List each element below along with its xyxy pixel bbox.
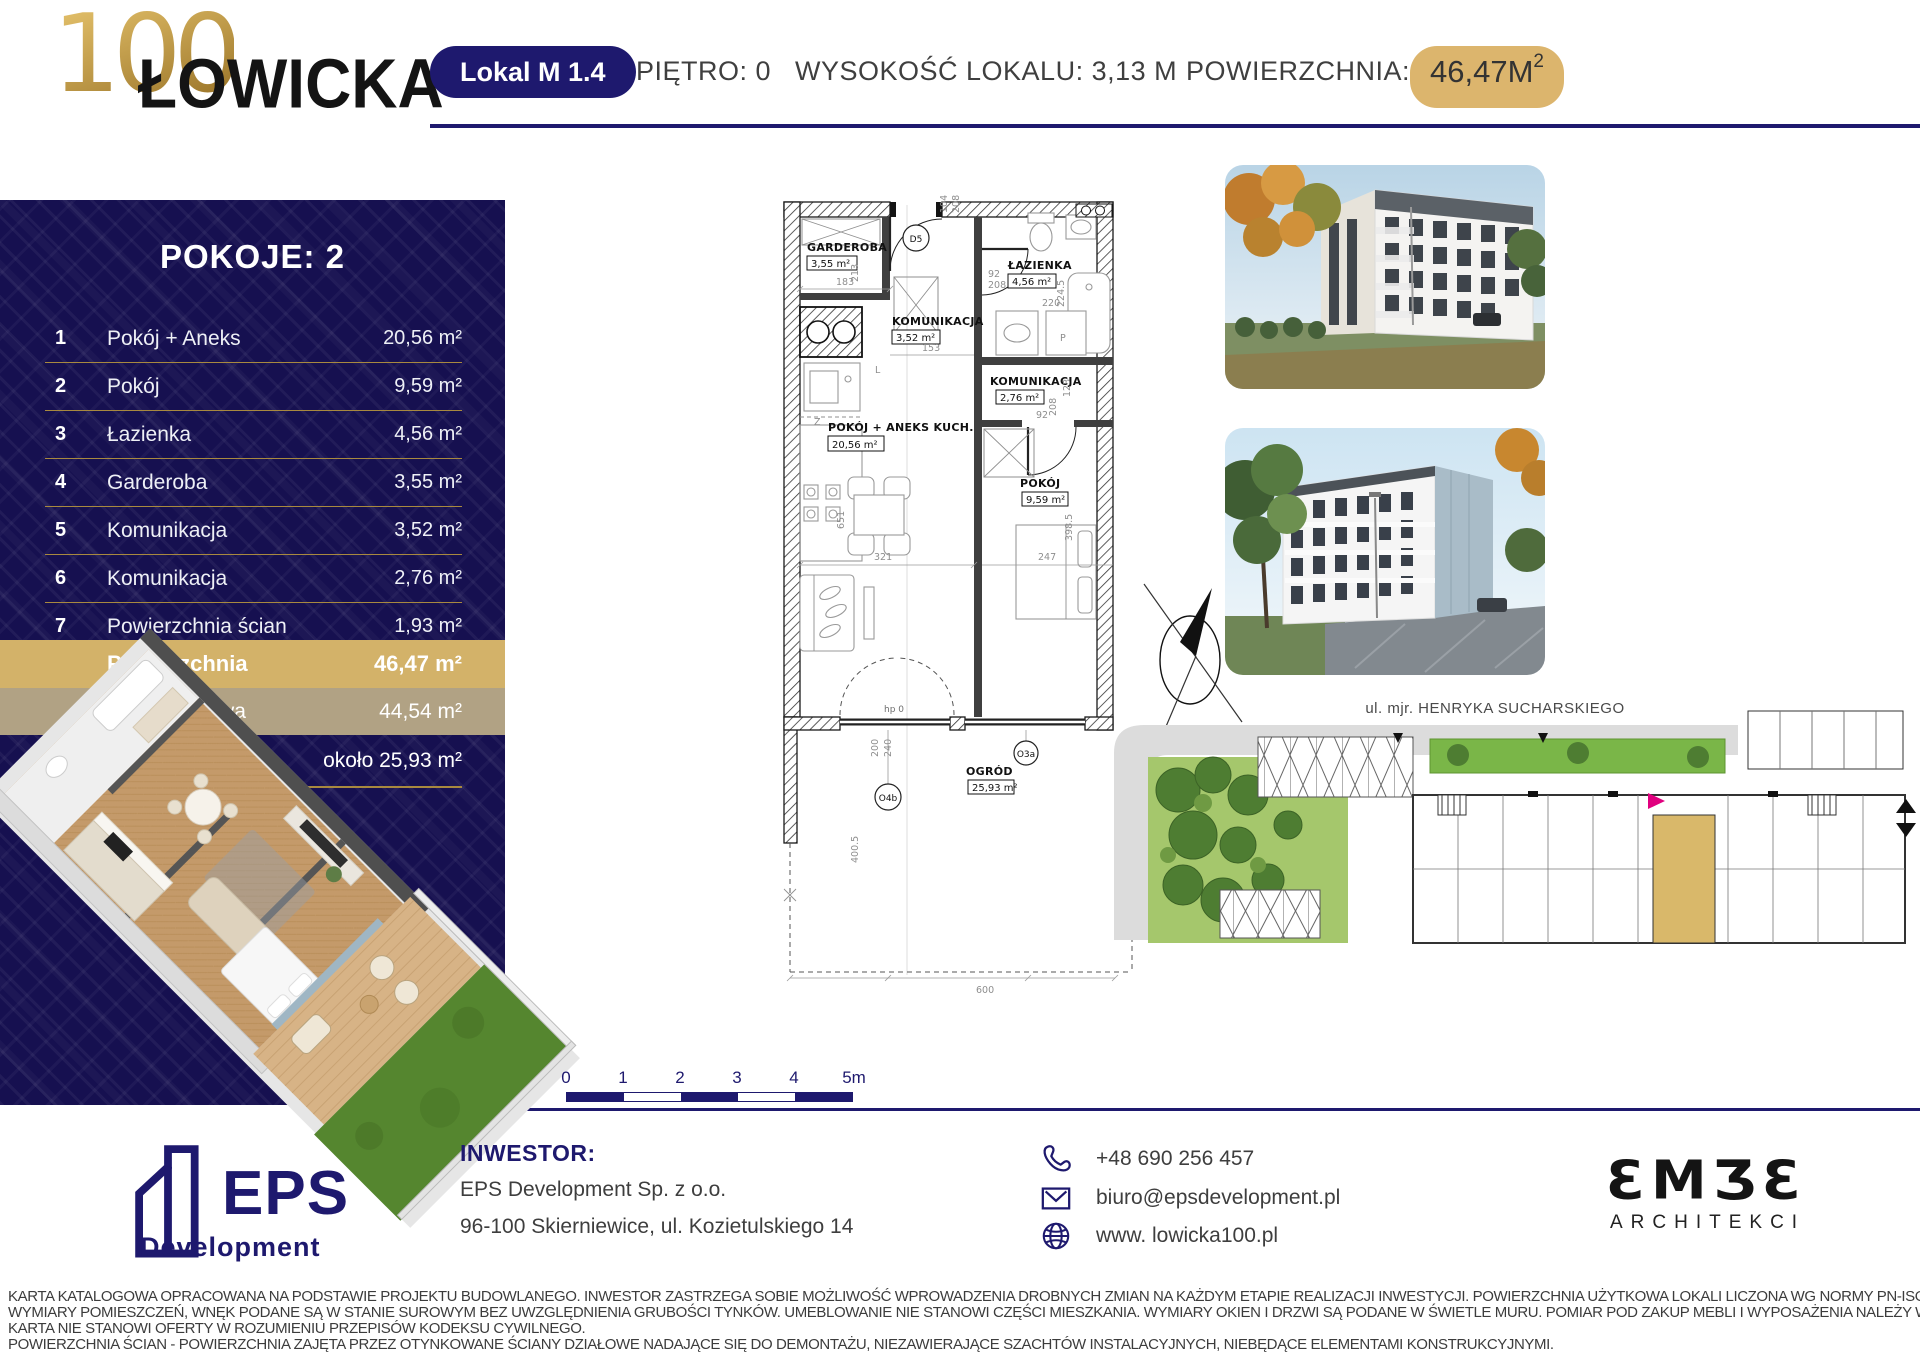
highlighted-unit bbox=[1653, 815, 1715, 943]
disclaimer-line: KARTA KATALOGOWA OPRACOWANA NA PODSTAWIE… bbox=[8, 1288, 1920, 1305]
room-area-komunikacja2: 2,76 m² bbox=[1000, 393, 1039, 404]
phone-icon bbox=[1040, 1143, 1072, 1175]
area-badge: 46,47M2 bbox=[1410, 46, 1564, 108]
room-label-pokoj-aneks: POKÓJ + ANEKS KUCH. bbox=[828, 421, 974, 434]
dim: 400.5 bbox=[850, 836, 861, 863]
room-area-ogrod: 25,93 m² bbox=[972, 783, 1018, 794]
floor-label: PIĘTRO: 0 bbox=[636, 56, 771, 87]
plan-dining-table bbox=[848, 477, 910, 555]
row-label: Pokój bbox=[107, 375, 160, 399]
area-value: 46,47M bbox=[1430, 54, 1533, 90]
logo-100-lowicka: 100 ŁOWICKA bbox=[52, 10, 412, 135]
scale-tick: 4 bbox=[774, 1068, 814, 1088]
scale-tick: 5m bbox=[834, 1068, 874, 1088]
logo-text: ŁOWICKA bbox=[138, 44, 444, 124]
site-plan bbox=[1108, 695, 1920, 945]
table-row: 6Komunikacja2,76 m² bbox=[45, 555, 462, 603]
room-table: 1Pokój + Aneks20,56 m² 2Pokój9,59 m² 3Ła… bbox=[45, 315, 462, 650]
dim: 208 bbox=[951, 195, 962, 213]
investor-address: 96-100 Skierniewice, ul. Kozietulskiego … bbox=[460, 1215, 853, 1239]
dim: 213 bbox=[850, 264, 861, 282]
dim: 92 bbox=[988, 269, 1000, 280]
email-icon bbox=[1040, 1182, 1072, 1214]
area-superscript: 2 bbox=[1533, 52, 1544, 71]
dim: 92 bbox=[1036, 410, 1048, 421]
row-label: Garderoba bbox=[107, 471, 207, 495]
phone-number[interactable]: +48 690 256 457 bbox=[1096, 1147, 1254, 1171]
eps-logo-subtext: Development bbox=[140, 1232, 321, 1263]
terrace-window-label: O4b bbox=[879, 794, 898, 804]
investor-name: EPS Development Sp. z o.o. bbox=[460, 1178, 726, 1202]
row-value: 4,56 m² bbox=[394, 423, 462, 446]
parking-row bbox=[1258, 737, 1413, 797]
row-number: 1 bbox=[45, 327, 95, 350]
plan-garden-fence bbox=[784, 730, 1138, 972]
hp-label: hp 0 bbox=[884, 705, 904, 715]
globe-icon bbox=[1040, 1220, 1072, 1252]
row-value: 9,59 m² bbox=[394, 375, 462, 398]
room-area-lazienka: 4,56 m² bbox=[1012, 277, 1051, 288]
dim: 600 bbox=[976, 985, 994, 996]
scale-tick: 0 bbox=[546, 1068, 586, 1088]
header-divider bbox=[430, 124, 1920, 128]
garden-window-label: O3a bbox=[1017, 750, 1035, 760]
row-value: 3,52 m² bbox=[394, 519, 462, 542]
plan-bed bbox=[1016, 525, 1096, 619]
table-row: 2Pokój9,59 m² bbox=[45, 363, 462, 411]
rooms-count-title: POKOJE: 2 bbox=[0, 238, 505, 276]
room-label-pokoj: POKÓJ bbox=[1020, 477, 1060, 490]
row-label: Komunikacja bbox=[107, 567, 227, 591]
scale-bar: 0 1 2 3 4 5m bbox=[566, 1068, 854, 1106]
table-row: 5Komunikacja3,52 m² bbox=[45, 507, 462, 555]
disclaimer-line: KARTA NIE STANOWI OFERTY W ROZUMIENIU PR… bbox=[8, 1320, 585, 1337]
dim: 123 bbox=[1062, 379, 1073, 397]
disclaimer-line: WYMIARY POMIESZCZEŃ, WNĘK PODANE SĄ W ST… bbox=[8, 1304, 1920, 1321]
email-row[interactable]: biuro@epsdevelopment.pl bbox=[1040, 1182, 1340, 1214]
row-number: 5 bbox=[45, 519, 95, 542]
floor-plan-drawing: Z L bbox=[770, 185, 1150, 1000]
scale-bar-segments bbox=[566, 1092, 853, 1102]
row-number: 3 bbox=[45, 423, 95, 446]
room-label-garderoba: GARDEROBA bbox=[807, 241, 887, 254]
dim: 247 bbox=[1038, 552, 1056, 563]
scale-tick: 1 bbox=[603, 1068, 643, 1088]
table-row: 1Pokój + Aneks20,56 m² bbox=[45, 315, 462, 363]
fridge-symbol: L bbox=[875, 365, 881, 376]
plan-sofa bbox=[800, 575, 874, 651]
washer-symbol: P bbox=[1060, 333, 1066, 344]
sink-symbol: Z bbox=[814, 417, 821, 428]
catalog-card: 100 ŁOWICKA Lokal M 1.4 PIĘTRO: 0 WYSOKO… bbox=[0, 0, 1920, 1358]
embe-logo-text: ƐMƷƐ bbox=[1606, 1150, 1807, 1212]
phone-row[interactable]: +48 690 256 457 bbox=[1040, 1143, 1254, 1175]
row-label: Pokój + Aneks bbox=[107, 327, 241, 351]
scale-tick: 3 bbox=[717, 1068, 757, 1088]
website-url[interactable]: www. lowicka100.pl bbox=[1096, 1224, 1278, 1248]
dim: 220 bbox=[1042, 298, 1060, 309]
building-photo-1 bbox=[1225, 165, 1545, 389]
height-label: WYSOKOŚĆ LOKALU: 3,13 M bbox=[795, 56, 1177, 87]
building-photo-2 bbox=[1225, 428, 1545, 675]
table-row: 4Garderoba3,55 m² bbox=[45, 459, 462, 507]
room-label-komunikacja1: KOMUNIKACJA bbox=[892, 315, 984, 328]
room-area-pokoj-aneks: 20,56 m² bbox=[832, 440, 878, 451]
dim: 398.5 bbox=[1064, 514, 1075, 541]
room-label-lazienka: ŁAZIENKA bbox=[1007, 259, 1072, 272]
door-marker-label: D5 bbox=[910, 235, 923, 245]
building-wing bbox=[1748, 711, 1903, 769]
scale-tick: 2 bbox=[660, 1068, 700, 1088]
row-label: Komunikacja bbox=[107, 519, 227, 543]
embe-logo-subtext: ARCHITEKCI bbox=[1610, 1212, 1805, 1234]
dim: 240 bbox=[883, 739, 894, 757]
row-value: 20,56 m² bbox=[383, 327, 462, 350]
dim: 153 bbox=[922, 343, 940, 354]
website-row[interactable]: www. lowicka100.pl bbox=[1040, 1220, 1278, 1252]
row-number: 4 bbox=[45, 471, 95, 494]
row-number: 2 bbox=[45, 375, 95, 398]
dim: 208 bbox=[1048, 398, 1059, 416]
dim: 321 bbox=[874, 552, 892, 563]
dim: 200 bbox=[870, 739, 881, 757]
email-address[interactable]: biuro@epsdevelopment.pl bbox=[1096, 1186, 1340, 1210]
room-area-pokoj: 9,59 m² bbox=[1026, 495, 1065, 506]
disclaimer-line: POWIERZCHNIA ŚCIAN - POWIERZCHNIA ZAJĘTA… bbox=[8, 1336, 1554, 1353]
row-value: 2,76 m² bbox=[394, 567, 462, 590]
room-area-garderoba: 3,55 m² bbox=[811, 259, 850, 270]
row-number: 6 bbox=[45, 567, 95, 590]
table-row: 3Łazienka4,56 m² bbox=[45, 411, 462, 459]
dim: 208 bbox=[988, 280, 1006, 291]
plan-shaft bbox=[1076, 204, 1112, 217]
plan-kitchen bbox=[800, 307, 862, 561]
area-label: POWIERZCHNIA: bbox=[1186, 56, 1410, 87]
eps-logo-text: EPS bbox=[222, 1158, 349, 1229]
row-label: Łazienka bbox=[107, 423, 191, 447]
investor-heading: INWESTOR: bbox=[460, 1140, 596, 1167]
dim: 651 bbox=[836, 511, 847, 529]
room-label-ogrod: OGRÓD bbox=[966, 765, 1013, 778]
parking-row bbox=[1220, 890, 1320, 938]
dim: 104 bbox=[939, 195, 950, 213]
unit-badge: Lokal M 1.4 bbox=[430, 46, 636, 98]
row-value: 3,55 m² bbox=[394, 471, 462, 494]
